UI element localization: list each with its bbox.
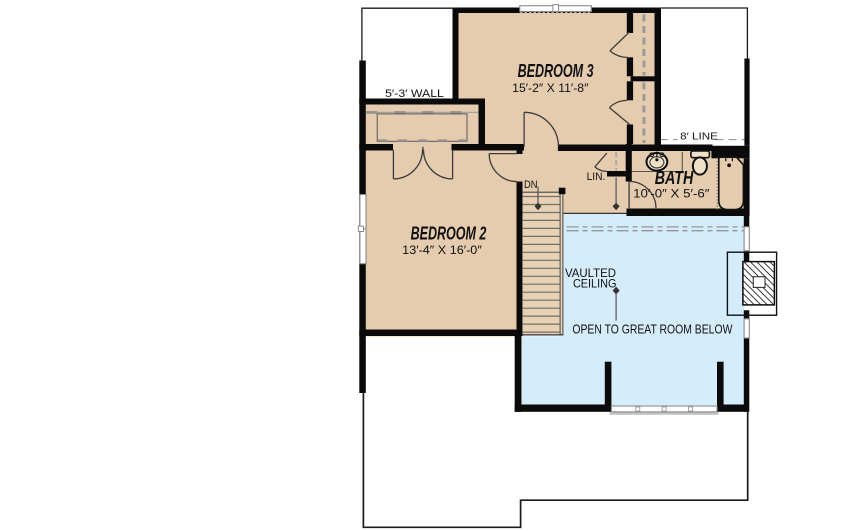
svg-text:DN: DN [524, 179, 538, 191]
svg-text:BEDROOM 3: BEDROOM 3 [518, 60, 594, 81]
svg-text:8′ LINE: 8′ LINE [680, 131, 718, 142]
svg-text:LIN.: LIN. [587, 171, 606, 183]
svg-text:BEDROOM 2: BEDROOM 2 [411, 222, 487, 243]
svg-text:BATH: BATH [655, 168, 694, 188]
svg-text:OPEN TO GREAT ROOM BELOW: OPEN TO GREAT ROOM BELOW [572, 323, 732, 337]
svg-text:CEILING: CEILING [573, 276, 617, 290]
svg-text:10′-0″ X 5′-6″: 10′-0″ X 5′-6″ [633, 187, 710, 201]
svg-text:13′-4″ X 16′-0″: 13′-4″ X 16′-0″ [402, 243, 482, 257]
svg-text:5′-3′ WALL: 5′-3′ WALL [385, 88, 444, 100]
svg-text:15′-2″ X 11′-8″: 15′-2″ X 11′-8″ [512, 81, 589, 95]
